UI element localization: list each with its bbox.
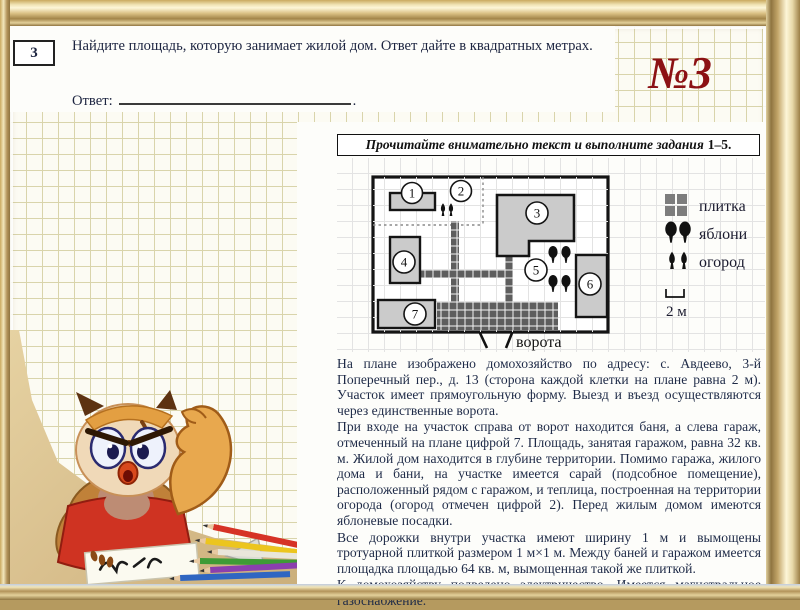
gate-label: ворота [516,334,562,351]
plot-plan-svg: 1 2 3 4 5 6 7 ворота [337,158,765,352]
document-panel: Прочитайте внимательно текст и выполните… [297,122,766,584]
plan-number-5: 5 [533,263,540,278]
plan-number-3: 3 [534,206,541,221]
paragraph-buildings: При входе на участок справа от ворот нах… [337,419,761,528]
plan-figure: 1 2 3 4 5 6 7 ворота [337,158,765,352]
walkway-horizontal [420,270,513,278]
task-panel: 3 Найдите площадь, которую занимает жило… [10,26,615,112]
answer-suffix: . [353,93,357,109]
frame-left [0,0,10,600]
owl-ear-tuft-right [156,390,177,410]
instruction-task-range: 1–5. [708,137,732,153]
owl-eye-highlight-right [138,444,143,449]
legend-label-tile: плитка [699,198,746,215]
legend-label-garden: огород [699,254,745,271]
plan-number-6: 6 [587,277,594,292]
frame-bottom [0,584,800,600]
answer-blank-line [119,90,351,105]
task-number-box: 3 [13,40,55,66]
scale-label: 2 м [666,304,687,320]
instruction-text: Прочитайте внимательно текст и выполните… [366,137,704,153]
paragraph-address: На плане изображено домохозяйство по адр… [337,356,761,418]
instruction-header: Прочитайте внимательно текст и выполните… [337,134,760,156]
walkway-vertical-2 [505,256,513,302]
answer-row: Ответ:. [72,90,356,110]
task-text: Найдите площадь, которую занимает жилой … [72,37,612,56]
frame-right [766,0,800,600]
page-number-badge: №3 [610,42,750,104]
tiled-plaza [437,302,558,330]
legend-label-apples: яблони [699,226,748,243]
owl-eye-highlight-left [108,444,113,449]
answer-label: Ответ: [72,93,113,109]
plan-number-1: 1 [409,186,416,201]
owl-illustration [30,386,330,584]
plan-number-2: 2 [458,184,465,199]
worksheet-page: №3 3 Найдите площадь, которую занимает ж… [10,26,766,584]
owl-raised-wing [170,406,231,514]
walkway-vertical-1 [451,221,459,302]
plan-number-7: 7 [412,307,419,322]
plan-number-4: 4 [401,255,408,270]
owl-mouth [123,470,133,482]
paragraph-walkways: Все дорожки внутри участка имеют ширину … [337,530,761,577]
owl-svg [30,386,330,584]
body-text: На плане изображено домохозяйство по адр… [337,356,761,610]
frame-top [0,0,800,26]
